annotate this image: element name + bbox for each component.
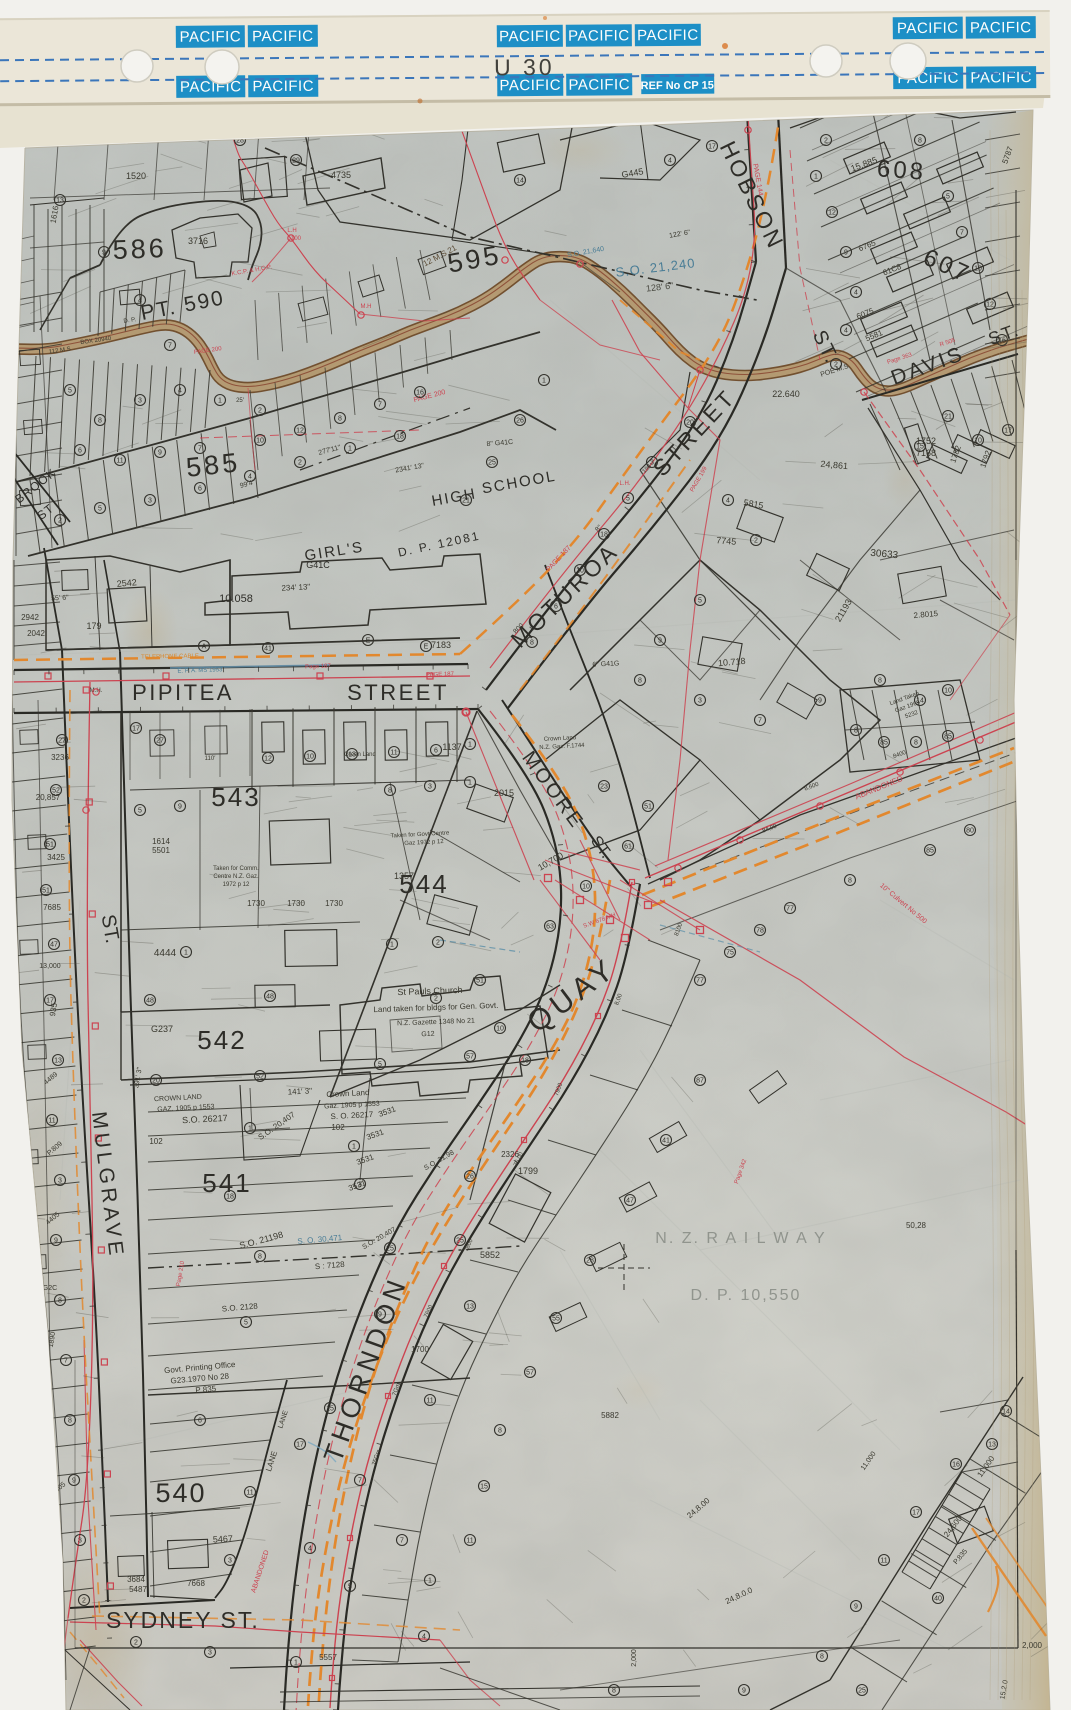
svg-text:14: 14 — [516, 178, 524, 185]
svg-text:6: 6 — [198, 1418, 202, 1425]
svg-text:7: 7 — [64, 1358, 68, 1365]
svg-text:27: 27 — [156, 738, 164, 745]
svg-text:8: 8 — [258, 1254, 262, 1261]
svg-text:PACIFIC: PACIFIC — [568, 27, 630, 44]
svg-text:5: 5 — [348, 1584, 352, 1591]
svg-text:9: 9 — [854, 1604, 858, 1611]
svg-text:543: 543 — [211, 782, 260, 812]
svg-text:Centre N.Z. Gaz.: Centre N.Z. Gaz. — [213, 874, 259, 880]
svg-text:12: 12 — [828, 210, 836, 217]
svg-text:9: 9 — [658, 638, 662, 645]
svg-text:E: E — [366, 638, 371, 645]
svg-text:586: 586 — [112, 233, 167, 265]
svg-text:REF No CP 15: REF No CP 15 — [641, 80, 714, 93]
svg-text:PACIFIC: PACIFIC — [252, 28, 314, 45]
svg-text:48: 48 — [266, 994, 274, 1001]
svg-text:2: 2 — [824, 138, 828, 145]
svg-text:1614: 1614 — [152, 837, 170, 846]
svg-text:2,000: 2,000 — [1022, 1641, 1043, 1650]
svg-text:16: 16 — [952, 1462, 960, 1469]
svg-text:4: 4 — [844, 328, 848, 335]
svg-text:1: 1 — [218, 398, 222, 405]
svg-text:27: 27 — [58, 738, 66, 745]
svg-text:23: 23 — [600, 784, 608, 791]
svg-text:52: 52 — [52, 788, 60, 795]
svg-text:47: 47 — [50, 942, 58, 949]
svg-text:8: 8 — [914, 740, 918, 747]
svg-text:4: 4 — [668, 158, 672, 165]
svg-text:41: 41 — [662, 1138, 670, 1145]
svg-text:1700: 1700 — [411, 1345, 429, 1354]
svg-text:9: 9 — [742, 1688, 746, 1695]
svg-text:110′: 110′ — [205, 756, 217, 762]
svg-text:1: 1 — [468, 780, 472, 787]
svg-text:Page 187: Page 187 — [305, 664, 332, 671]
svg-text:5467: 5467 — [213, 1533, 234, 1544]
svg-text:PACIFIC: PACIFIC — [499, 28, 561, 45]
svg-text:1730: 1730 — [247, 899, 265, 908]
svg-text:G2C: G2C — [43, 1285, 57, 1292]
svg-text:5: 5 — [378, 1062, 382, 1069]
svg-text:1: 1 — [348, 446, 352, 453]
svg-text:7: 7 — [400, 1538, 404, 1545]
svg-text:15: 15 — [916, 444, 924, 451]
svg-text:8: 8 — [498, 1428, 502, 1435]
svg-text:M.H: M.H — [361, 304, 372, 310]
svg-text:PIPITEA: PIPITEA — [132, 680, 234, 705]
svg-text:4: 4 — [308, 1546, 312, 1553]
svg-text:8: 8 — [638, 678, 642, 685]
svg-text:9: 9 — [72, 1478, 76, 1485]
svg-text:3: 3 — [78, 1538, 82, 1545]
svg-text:9: 9 — [178, 804, 182, 811]
svg-text:2: 2 — [258, 408, 262, 415]
svg-text:8: 8 — [854, 728, 858, 735]
svg-text:2: 2 — [436, 940, 440, 947]
svg-text:14: 14 — [916, 698, 924, 705]
svg-text:25: 25 — [488, 460, 496, 467]
svg-text:11: 11 — [246, 1490, 253, 1497]
svg-text:51: 51 — [42, 888, 50, 895]
svg-text:20: 20 — [686, 420, 694, 427]
svg-text:9: 9 — [54, 1238, 58, 1245]
svg-text:STREET: STREET — [347, 680, 449, 705]
svg-text:48: 48 — [146, 998, 154, 1005]
svg-text:1: 1 — [814, 174, 818, 181]
svg-text:5: 5 — [138, 808, 142, 815]
svg-text:G41C: G41C — [306, 560, 330, 570]
svg-text:4444: 4444 — [154, 948, 177, 959]
svg-text:2: 2 — [754, 538, 758, 545]
svg-text:52: 52 — [256, 1074, 264, 1081]
svg-text:85: 85 — [880, 740, 888, 747]
svg-text:4: 4 — [178, 388, 182, 395]
svg-text:10: 10 — [306, 754, 314, 761]
svg-text:9: 9 — [102, 250, 106, 257]
svg-text:78: 78 — [756, 928, 764, 935]
svg-text:U 30: U 30 — [494, 54, 555, 80]
svg-text:61: 61 — [624, 844, 632, 851]
svg-text:18: 18 — [396, 434, 404, 441]
svg-text:18: 18 — [521, 1058, 529, 1065]
svg-text:3236: 3236 — [51, 753, 69, 762]
svg-text:N. Z. R A I L W A Y: N. Z. R A I L W A Y — [655, 1230, 826, 1247]
svg-text:77: 77 — [786, 906, 794, 913]
svg-text:PACIFIC: PACIFIC — [970, 69, 1032, 86]
svg-text:17: 17 — [46, 998, 54, 1005]
svg-text:5501: 5501 — [152, 846, 170, 855]
svg-text:1: 1 — [390, 942, 394, 949]
svg-text:41: 41 — [264, 646, 272, 653]
svg-text:8: 8 — [918, 138, 922, 145]
svg-text:11: 11 — [880, 1558, 887, 1565]
svg-text:3: 3 — [148, 498, 152, 505]
svg-text:7: 7 — [378, 402, 382, 409]
svg-text:8: 8 — [68, 1418, 72, 1425]
svg-text:87: 87 — [696, 1078, 704, 1085]
svg-text:17: 17 — [708, 144, 716, 151]
svg-text:13: 13 — [348, 752, 356, 759]
svg-text:Taken for Comm.: Taken for Comm. — [213, 866, 259, 872]
svg-text:2,000: 2,000 — [631, 1649, 638, 1667]
svg-text:10: 10 — [944, 688, 952, 695]
svg-text:7668: 7668 — [187, 1579, 205, 1588]
svg-text:15: 15 — [480, 1484, 488, 1491]
svg-text:5: 5 — [698, 598, 702, 605]
svg-text:5: 5 — [946, 194, 950, 201]
svg-text:18: 18 — [600, 532, 608, 539]
svg-text:6: 6 — [78, 448, 82, 455]
svg-text:25: 25 — [858, 1688, 866, 1695]
svg-text:3: 3 — [358, 1182, 362, 1189]
svg-text:PACIFIC: PACIFIC — [179, 28, 241, 45]
svg-text:21: 21 — [462, 498, 470, 505]
svg-text:5487: 5487 — [129, 1585, 147, 1594]
svg-text:17: 17 — [296, 1442, 304, 1449]
svg-text:1357: 1357 — [394, 871, 414, 881]
svg-text:25′: 25′ — [236, 398, 245, 404]
svg-text:20: 20 — [152, 1078, 160, 1085]
svg-text:2015: 2015 — [494, 788, 514, 798]
svg-text:540: 540 — [155, 1478, 206, 1508]
svg-text:SYDNEY ST.: SYDNEY ST. — [106, 1607, 260, 1633]
svg-text:5852: 5852 — [480, 1250, 500, 1260]
svg-text:1972 p 12: 1972 p 12 — [223, 882, 250, 888]
svg-text:3: 3 — [228, 1558, 232, 1565]
svg-text:3: 3 — [428, 784, 432, 791]
svg-text:9: 9 — [158, 450, 162, 457]
svg-text:7685: 7685 — [43, 903, 61, 912]
svg-text:PACIFIC: PACIFIC — [637, 27, 699, 44]
svg-text:7: 7 — [358, 1478, 362, 1485]
svg-text:26: 26 — [466, 1174, 474, 1181]
svg-text:PACIFIC: PACIFIC — [252, 78, 314, 95]
svg-text:16: 16 — [416, 390, 424, 397]
svg-text:7183: 7183 — [431, 640, 451, 650]
svg-text:3425: 3425 — [47, 853, 65, 862]
svg-text:1: 1 — [248, 1126, 252, 1133]
svg-text:6: 6 — [434, 748, 438, 755]
svg-text:179: 179 — [86, 621, 101, 631]
svg-text:608: 608 — [876, 155, 927, 185]
svg-text:2542: 2542 — [116, 577, 137, 589]
svg-text:11: 11 — [390, 750, 397, 757]
svg-text:22.640: 22.640 — [772, 389, 800, 399]
svg-text:234′ 13": 234′ 13" — [281, 582, 310, 593]
svg-text:11: 11 — [48, 1118, 55, 1125]
svg-text:63: 63 — [546, 924, 554, 931]
svg-text:102: 102 — [331, 1123, 345, 1132]
svg-text:10: 10 — [974, 438, 982, 445]
svg-text:11: 11 — [466, 1538, 473, 1545]
svg-text:TELEPHONE CABLE: TELEPHONE CABLE — [141, 653, 199, 660]
svg-text:50,28: 50,28 — [906, 1221, 927, 1230]
svg-text:1: 1 — [352, 1144, 356, 1151]
svg-text:102: 102 — [149, 1137, 163, 1146]
svg-text:85: 85 — [926, 848, 934, 855]
svg-text:3716: 3716 — [188, 236, 208, 246]
svg-text:4: 4 — [854, 290, 858, 297]
svg-text:13: 13 — [56, 198, 64, 205]
svg-text:8: 8 — [878, 678, 882, 685]
svg-text:13: 13 — [466, 1304, 474, 1311]
svg-text:E: E — [424, 644, 429, 651]
svg-text:G12: G12 — [421, 1031, 435, 1038]
svg-text:6: 6 — [554, 604, 558, 611]
svg-text:PACIFIC: PACIFIC — [897, 20, 959, 37]
svg-text:5: 5 — [68, 388, 72, 395]
svg-text:51: 51 — [644, 804, 652, 811]
svg-text:75: 75 — [726, 950, 734, 957]
svg-text:1: 1 — [184, 950, 188, 957]
svg-text:8: 8 — [530, 640, 534, 647]
svg-text:2: 2 — [298, 460, 302, 467]
svg-text:4: 4 — [422, 1634, 426, 1641]
svg-text:40: 40 — [934, 1596, 942, 1603]
svg-text:5: 5 — [98, 506, 102, 513]
svg-text:6: 6 — [198, 486, 202, 493]
svg-text:3: 3 — [208, 1650, 212, 1657]
svg-text:PAGE 187: PAGE 187 — [426, 671, 455, 678]
svg-text:29: 29 — [292, 158, 300, 165]
svg-text:2: 2 — [834, 362, 838, 369]
svg-text:D. P. 10,550: D. P. 10,550 — [691, 1287, 802, 1304]
svg-text:3: 3 — [650, 460, 654, 467]
svg-text:PACIFIC: PACIFIC — [568, 76, 630, 93]
svg-text:2: 2 — [134, 1640, 138, 1647]
svg-text:8: 8 — [388, 788, 392, 795]
svg-text:10: 10 — [496, 1026, 504, 1033]
svg-text:10: 10 — [256, 438, 264, 445]
svg-text:9: 9 — [818, 698, 822, 705]
svg-text:4735: 4735 — [331, 170, 351, 180]
svg-text:77: 77 — [696, 978, 704, 985]
svg-text:4: 4 — [726, 498, 730, 505]
svg-text:7: 7 — [198, 446, 202, 453]
svg-text:A: A — [202, 644, 207, 651]
svg-text:8: 8 — [612, 1688, 616, 1695]
svg-text:7: 7 — [960, 230, 964, 237]
svg-text:55: 55 — [552, 1316, 560, 1323]
svg-text:51: 51 — [476, 978, 484, 985]
svg-text:12: 12 — [296, 428, 304, 435]
svg-text:P 835: P 835 — [195, 1384, 217, 1395]
svg-text:17: 17 — [132, 726, 140, 733]
svg-text:1: 1 — [542, 378, 546, 385]
svg-text:8: 8 — [820, 1654, 824, 1661]
svg-text:L.H: L.H — [287, 228, 296, 234]
svg-text:2942: 2942 — [21, 613, 39, 622]
svg-text:3: 3 — [698, 698, 702, 705]
svg-text:57: 57 — [466, 1054, 474, 1061]
svg-text:13: 13 — [988, 1442, 996, 1449]
svg-text:2: 2 — [82, 1598, 86, 1605]
svg-text:1520: 1520 — [126, 171, 146, 181]
svg-text:10.058: 10.058 — [219, 593, 253, 605]
svg-text:26: 26 — [516, 418, 524, 425]
svg-text:4: 4 — [248, 474, 252, 481]
svg-text:585: 585 — [185, 447, 242, 482]
svg-text:1: 1 — [294, 1660, 298, 1667]
svg-text:542: 542 — [197, 1025, 246, 1055]
svg-text:4: 4 — [138, 298, 142, 305]
svg-text:9: 9 — [844, 250, 848, 257]
svg-text:5: 5 — [244, 1320, 248, 1327]
svg-text:5: 5 — [626, 496, 630, 503]
svg-text:8: 8 — [848, 878, 852, 885]
svg-text:25: 25 — [456, 1238, 464, 1245]
svg-text:2042: 2042 — [27, 629, 45, 638]
svg-text:2: 2 — [434, 996, 438, 1003]
svg-text:80: 80 — [966, 828, 974, 835]
svg-text:7: 7 — [168, 343, 172, 350]
svg-text:8: 8 — [98, 418, 102, 425]
svg-text:13: 13 — [54, 1058, 62, 1065]
svg-text:28: 28 — [586, 1258, 594, 1265]
svg-text:5882: 5882 — [601, 1411, 619, 1420]
svg-text:13,000: 13,000 — [39, 963, 61, 970]
svg-text:L.H.: L.H. — [619, 481, 630, 487]
svg-text:15: 15 — [326, 1406, 334, 1413]
svg-text:3684: 3684 — [127, 1575, 145, 1584]
svg-text:2: 2 — [58, 518, 62, 525]
svg-text:1: 1 — [468, 742, 472, 749]
svg-text:11: 11 — [116, 458, 123, 465]
svg-text:10: 10 — [974, 266, 982, 273]
svg-text:12: 12 — [986, 302, 994, 309]
svg-text:3: 3 — [138, 398, 142, 405]
svg-text:25: 25 — [386, 1246, 394, 1253]
svg-text:18: 18 — [226, 1194, 234, 1201]
svg-text:3: 3 — [58, 1178, 62, 1185]
svg-text:17: 17 — [912, 1510, 920, 1517]
svg-text:1730: 1730 — [325, 899, 343, 908]
svg-text:85: 85 — [944, 734, 952, 741]
svg-text:PACIFIC: PACIFIC — [970, 19, 1032, 36]
svg-text:7: 7 — [758, 718, 762, 725]
svg-text:1137: 1137 — [442, 742, 461, 752]
svg-text:10: 10 — [582, 884, 590, 891]
svg-text:12: 12 — [264, 756, 272, 763]
svg-text:8: 8 — [58, 1298, 62, 1305]
svg-text:51: 51 — [46, 842, 54, 849]
svg-text:47: 47 — [626, 1198, 634, 1205]
svg-text:5557: 5557 — [319, 1653, 337, 1662]
svg-text:57: 57 — [526, 1370, 534, 1377]
svg-text:8: 8 — [338, 416, 342, 423]
svg-text:6" G41G: 6" G41G — [592, 660, 619, 668]
